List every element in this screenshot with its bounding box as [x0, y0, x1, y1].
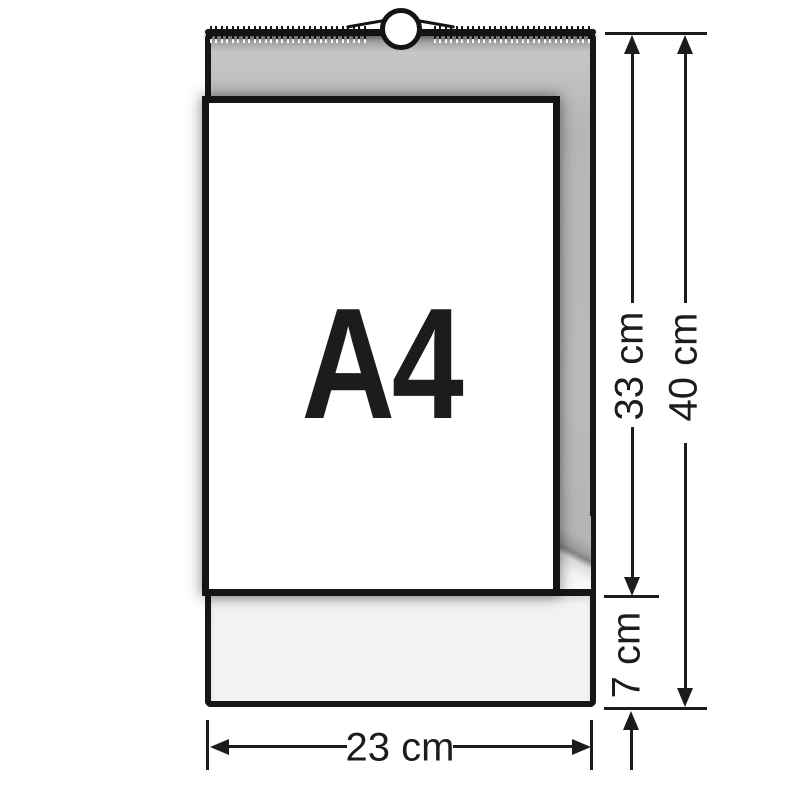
a4-page: A4: [202, 96, 560, 596]
dim-40-arrow-down-icon: [677, 688, 693, 707]
dim-33-label: 33 cm: [608, 312, 653, 421]
dim-23-line-left: [227, 745, 347, 748]
dim-33-line-lower: [631, 427, 634, 578]
calendar-dimension-diagram: A4 33 cm 40 cm 7 cm 23 cm: [0, 0, 800, 800]
dim-33-arrow-down-icon: [624, 577, 640, 596]
dim-7-label: 7 cm: [605, 612, 650, 699]
dim-40-label: 40 cm: [662, 313, 707, 422]
dim-bottom-extension-line: [604, 707, 707, 710]
dim-7-line: [630, 726, 633, 770]
a4-page-label: A4: [301, 249, 460, 443]
dim-40-line-upper: [684, 50, 687, 303]
calendar-footer-strip: [205, 589, 596, 707]
dim-23-arrow-right-icon: [572, 739, 591, 755]
dim-23-line-right: [453, 745, 573, 748]
dim-33-extension-line: [604, 595, 659, 598]
dim-23-label: 23 cm: [346, 726, 455, 771]
dim-33-line-upper: [631, 50, 634, 303]
hanger-hole-icon: [380, 8, 422, 50]
dim-40-line-lower: [684, 443, 687, 690]
dim-23-extension-left: [206, 720, 209, 770]
